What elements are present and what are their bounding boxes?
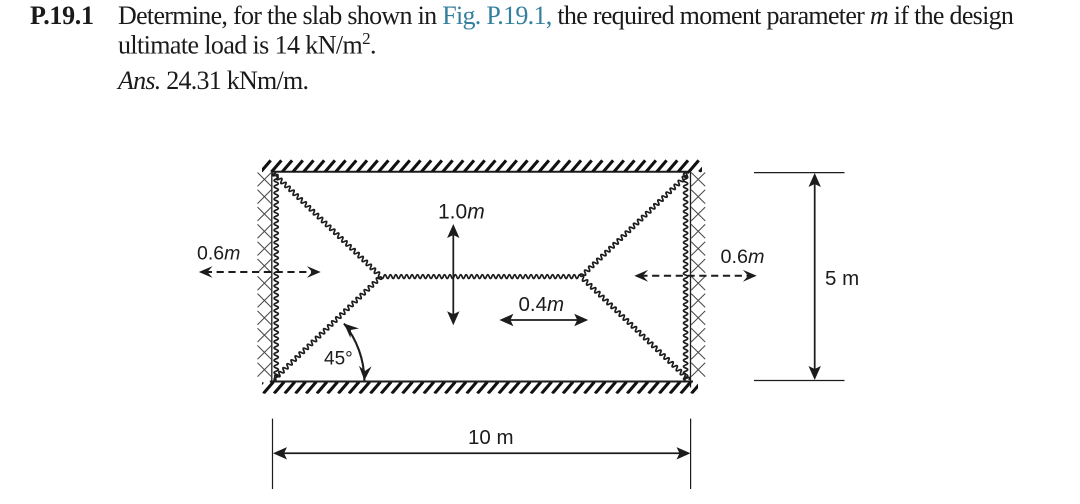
svg-text:0.4m: 0.4m xyxy=(519,293,565,316)
svg-text:45°: 45° xyxy=(324,349,353,370)
svg-text:1.0m: 1.0m xyxy=(438,200,485,223)
svg-text:5 m: 5 m xyxy=(825,267,859,290)
svg-text:0.6m: 0.6m xyxy=(197,243,240,265)
svg-text:10 m: 10 m xyxy=(468,426,514,449)
svg-text:0.6m: 0.6m xyxy=(721,246,765,268)
